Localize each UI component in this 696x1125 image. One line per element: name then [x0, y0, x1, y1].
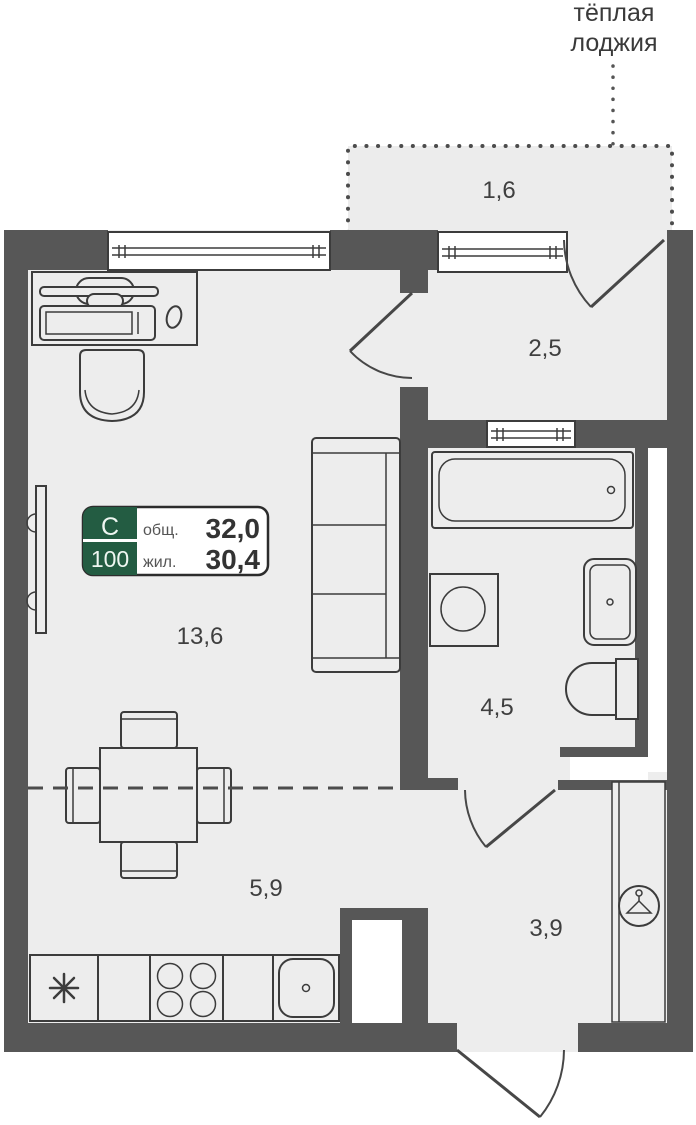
badge-total-value: 32,0 [206, 513, 261, 544]
kitchen-counter [30, 955, 339, 1021]
badge-living-value: 30,4 [206, 544, 261, 575]
counter-cell [98, 955, 150, 1021]
label-loggia-area: 1,6 [482, 177, 515, 204]
toilet [566, 659, 638, 719]
dining-table [100, 748, 197, 842]
counter-cell [223, 955, 273, 1021]
label-hallway-area: 3,9 [529, 915, 562, 942]
window-living [108, 232, 330, 270]
sofa [312, 438, 400, 672]
floor-plan-svg: тёплая лоджия [0, 0, 696, 1125]
desk [32, 272, 197, 345]
note-line-2: лоджия [570, 29, 657, 57]
label-entry-loggia-area: 2,5 [528, 335, 561, 362]
info-badge: С 100 общ. 32,0 жил. 30,4 [83, 507, 268, 575]
chair-top [121, 712, 177, 748]
floor-plan: тёплая лоджия [0, 0, 696, 1125]
washing-machine [430, 574, 498, 646]
fridge [30, 955, 98, 1021]
chair-left [66, 768, 100, 823]
badge-plan-type: С [101, 513, 119, 541]
badge-living-label: жил. [143, 554, 176, 571]
snowflake-icon [50, 974, 78, 1002]
note-line-1: тёплая [574, 0, 655, 27]
wardrobe [612, 782, 665, 1022]
hanger-icon [619, 886, 659, 926]
kitchen-sink [273, 955, 339, 1021]
office-chair [80, 350, 144, 421]
label-kitchen-area: 5,9 [249, 875, 282, 902]
window-entry-loggia [438, 232, 567, 272]
label-bathroom-area: 4,5 [480, 694, 513, 721]
badge-total-label: общ. [143, 522, 179, 539]
duct-shaft-kitchen [352, 920, 402, 1023]
duct-shaft-bathroom [570, 757, 648, 780]
badge-plan-number: 100 [91, 546, 129, 572]
stove [150, 955, 223, 1021]
label-living-area: 13,6 [177, 623, 224, 650]
bathroom-sink [584, 559, 636, 645]
chair-right [197, 768, 231, 823]
door-entrance [457, 1050, 564, 1117]
window-bathroom [487, 421, 575, 447]
chair-bottom [121, 842, 177, 878]
bathtub [432, 452, 633, 528]
duct-shaft-right [648, 448, 667, 772]
